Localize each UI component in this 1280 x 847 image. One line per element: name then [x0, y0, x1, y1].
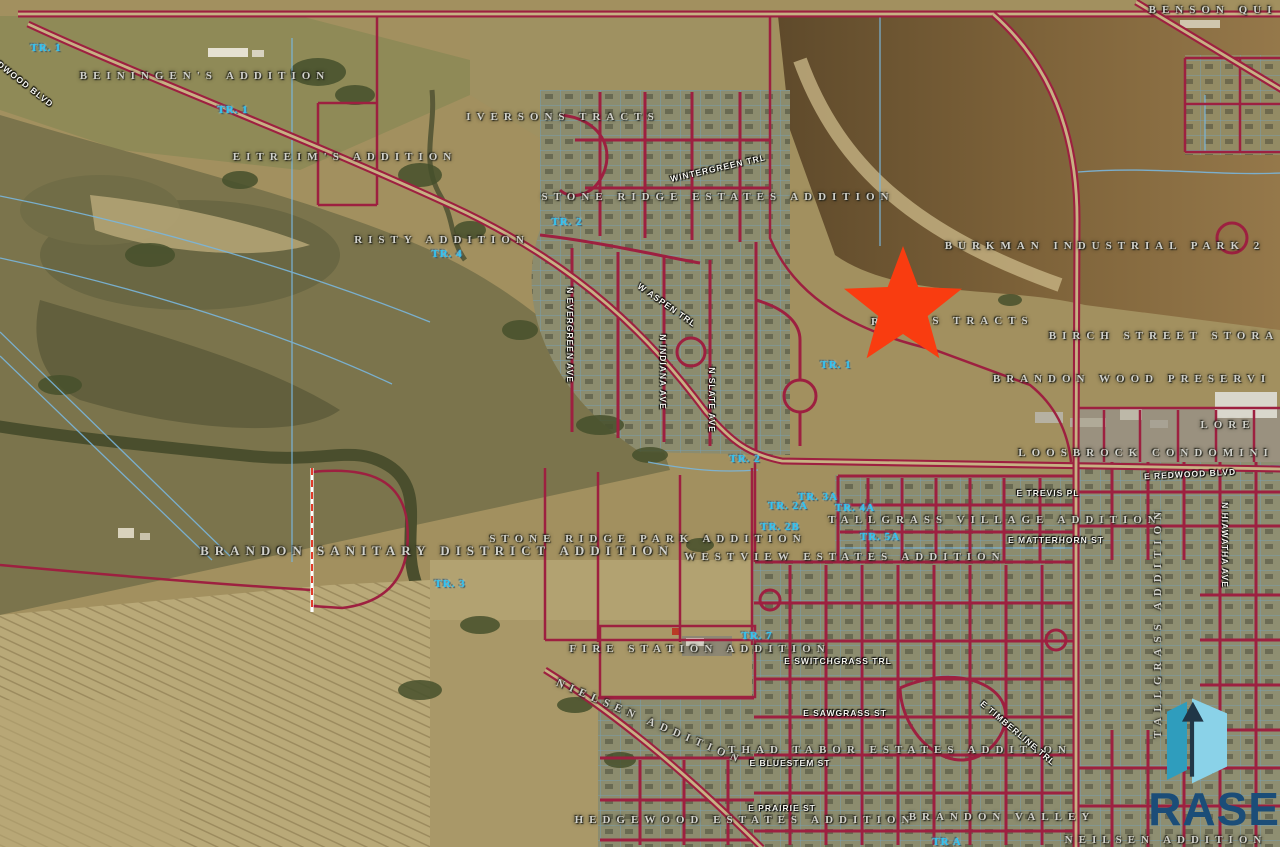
- terrain-layer: [0, 0, 1280, 847]
- logo-arrow-shaft: [1190, 715, 1194, 777]
- rase-logo: RASE: [1128, 682, 1280, 847]
- rase-logo-icon: [1162, 690, 1232, 790]
- map-viewport[interactable]: BENSON QUIBEININGEN'S ADDITIONIVERSONS T…: [0, 0, 1280, 847]
- logo-left-panel: [1167, 702, 1187, 780]
- aerial-map: [0, 0, 1280, 847]
- rase-logo-text: RASE: [1128, 786, 1280, 832]
